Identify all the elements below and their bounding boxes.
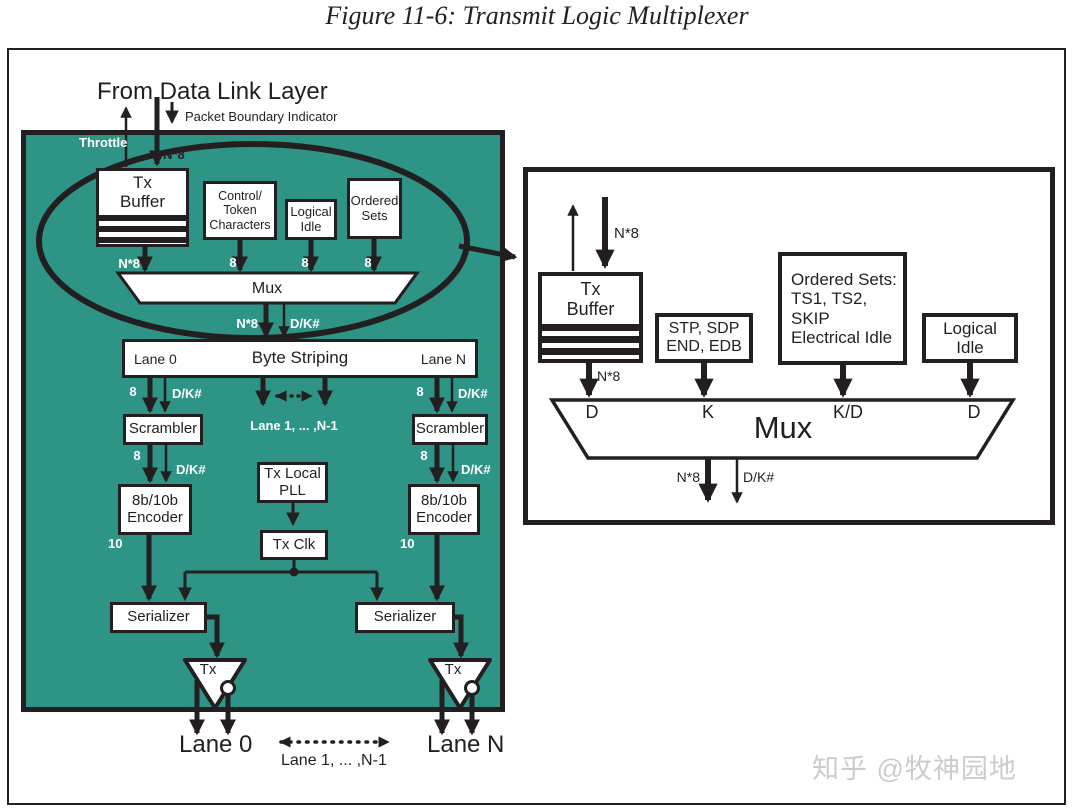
serializerN-box: Serializer xyxy=(355,602,455,633)
buffer-stripe xyxy=(99,226,186,232)
logical-idle-box: Logical Idle xyxy=(285,199,337,240)
detail-mux-in-d2-label: D xyxy=(962,403,986,423)
figure-title: Figure 11-6: Transmit Logic Multiplexer xyxy=(0,1,1074,31)
detail-logical-idle-box: Logical Idle xyxy=(922,313,1018,363)
tx-buffer-box: Tx Buffer xyxy=(96,168,189,247)
dk-scramblerN-label: D/K# xyxy=(461,463,491,477)
dk-scrambler0-label: D/K# xyxy=(176,463,206,477)
byte-striping-box: Lane 0 Byte Striping Lane N xyxy=(122,339,478,378)
mux-label: Mux xyxy=(207,280,327,298)
serializer0-box: Serializer xyxy=(110,602,207,633)
detail-ordered-sets-box: Ordered Sets: TS1, TS2, SKIP Electrical … xyxy=(778,252,907,365)
midlanes-label: Lane 1, ... ,N-1 xyxy=(248,419,340,433)
throttle-label: Throttle xyxy=(79,136,127,150)
buffer-stripe xyxy=(542,336,639,343)
bottom-lane0-label: Lane 0 xyxy=(179,732,252,758)
ordered-sets-box: Ordered Sets xyxy=(347,178,402,239)
detail-n8-in-label: N*8 xyxy=(614,226,639,243)
n8-mux-in-label: N*8 xyxy=(104,257,140,271)
bus8-scrambler0-label: 8 xyxy=(130,449,144,463)
watermark: 知乎 @牧神园地 xyxy=(812,747,1017,786)
bus8-control-label: 8 xyxy=(226,256,240,270)
scrambler0-box: Scrambler xyxy=(123,414,203,445)
tx-local-pll-box: Tx Local PLL xyxy=(257,462,328,503)
buffer-stripe xyxy=(542,324,639,331)
bus8-logical-label: 8 xyxy=(298,256,312,270)
bus10-encoder0-label: 10 xyxy=(108,537,122,551)
bus8-lane0-label: 8 xyxy=(126,385,140,399)
dk-mux-out-label: D/K# xyxy=(290,317,320,331)
encoder0-box: 8b/10b Encoder xyxy=(118,484,192,535)
detail-n8-out-label: N*8 xyxy=(597,369,620,384)
bottom-midlanes-label: Lane 1, ... ,N-1 xyxy=(281,752,387,770)
tx-driverN-label: Tx xyxy=(436,662,470,679)
from-data-link-layer-label: From Data Link Layer xyxy=(97,79,328,105)
tx-clk-box: Tx Clk xyxy=(260,530,328,560)
detail-mux-label: Mux xyxy=(740,411,826,445)
byte-striping-laneN-label: Lane N xyxy=(421,352,466,367)
tx-driver0-label: Tx xyxy=(191,662,225,679)
detail-tx-buffer-label: Tx Buffer xyxy=(567,279,615,320)
detail-mux-in-kd-label: K/D xyxy=(830,403,866,423)
bus8-scramblerN-label: 8 xyxy=(417,449,431,463)
detail-n8-mux-out-label: N*8 xyxy=(666,470,700,485)
detail-tx-buffer-box: Tx Buffer xyxy=(538,272,643,363)
n8-top-label: N*8 xyxy=(163,148,185,162)
bus10-encoderN-label: 10 xyxy=(400,537,414,551)
buffer-stripe xyxy=(99,237,186,243)
dk-lane0-label: D/K# xyxy=(172,387,202,401)
detail-mux-in-k-label: K xyxy=(696,403,720,423)
dk-laneN-label: D/K# xyxy=(458,387,488,401)
figure-page: Figure 11-6: Transmit Logic Multiplexer xyxy=(0,0,1074,809)
buffer-stripe xyxy=(542,348,639,355)
detail-dk-mux-out-label: D/K# xyxy=(743,470,774,485)
bus8-ordered-label: 8 xyxy=(361,256,375,270)
bus8-laneN-label: 8 xyxy=(413,385,427,399)
buffer-stripe xyxy=(99,215,186,221)
bottom-laneN-label: Lane N xyxy=(427,732,504,758)
detail-mux-in-d1-label: D xyxy=(580,403,604,423)
tx-buffer-label: Tx Buffer xyxy=(120,173,165,211)
control-token-box: Control/ Token Characters xyxy=(203,181,277,240)
scramblerN-box: Scrambler xyxy=(412,414,488,445)
packet-boundary-indicator-label: Packet Boundary Indicator xyxy=(185,110,337,124)
encoderN-box: 8b/10b Encoder xyxy=(408,484,480,535)
n8-mux-out-label: N*8 xyxy=(226,317,258,331)
detail-stp-box: STP, SDP END, EDB xyxy=(655,313,753,363)
